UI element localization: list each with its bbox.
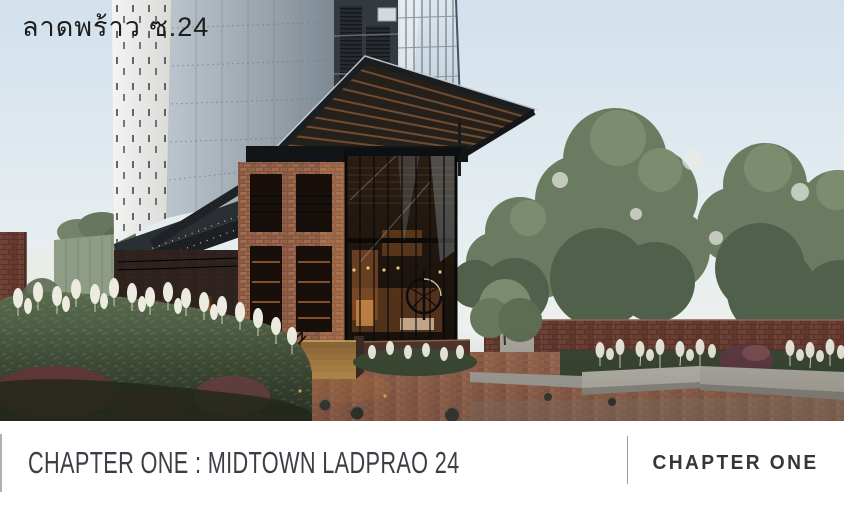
- photo-vignette: [0, 330, 844, 421]
- architectural-render-photo: ลาดพร้าว ซ.24: [0, 0, 844, 421]
- caption-bar: CHAPTER ONE : MIDTOWN LADPRAO 24 CHAPTER…: [0, 421, 844, 505]
- render-illustration: [0, 0, 844, 421]
- brand-logo: CHAPTER ONE: [653, 452, 819, 475]
- page: ลาดพร้าว ซ.24 CHAPTER ONE : MIDTOWN LADP…: [0, 0, 844, 505]
- bar-left-notch: [0, 434, 2, 492]
- location-label: ลาดพร้าว ซ.24: [22, 10, 209, 44]
- project-title: CHAPTER ONE : MIDTOWN LADPRAO 24: [28, 421, 460, 505]
- brand-zone: CHAPTER ONE: [628, 421, 844, 505]
